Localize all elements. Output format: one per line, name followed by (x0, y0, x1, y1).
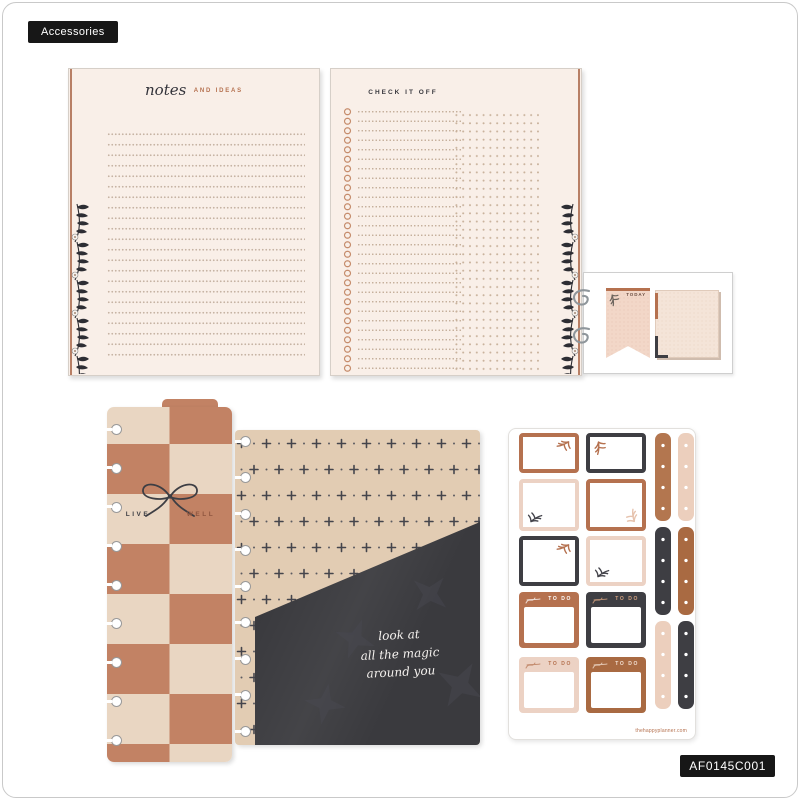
sticker-box (586, 433, 646, 473)
today-label: TODAY (626, 292, 646, 297)
sprig-icon (523, 507, 544, 528)
punch-hole (240, 726, 251, 737)
sticky-note-card: TODAY (583, 272, 733, 374)
todo-label: TO DO (548, 661, 572, 667)
checkerboard-bookmark: LIVE WELL (107, 407, 232, 762)
checklist-title: CHECK IT OFF (345, 89, 461, 96)
script-scribble-icon (592, 660, 610, 670)
sticker-box (586, 536, 646, 586)
charcoal-accent-stripe (655, 355, 668, 358)
strip-sticker (678, 433, 694, 521)
sprig-icon (590, 562, 611, 583)
product-canvas: Accessories notes AND IDEAS CHECK IT OFF (0, 0, 800, 800)
punch-hole (240, 472, 251, 483)
notes-title: notes AND IDEAS (69, 81, 319, 100)
todo-sticker-box: TO DO (519, 657, 579, 713)
punch-hole (240, 581, 251, 592)
strip-sticker (655, 621, 671, 709)
todo-sticker-box: TO DO (586, 657, 646, 713)
strip-sticker (655, 527, 671, 615)
strip-sticker (678, 527, 694, 615)
punch-hole (111, 424, 122, 435)
square-sticky-note (655, 290, 719, 358)
punch-hole (111, 580, 122, 591)
punch-hole (240, 690, 251, 701)
todo-label: TO DO (548, 596, 572, 602)
script-scribble-icon (592, 595, 610, 605)
todo-writing-area (591, 607, 641, 643)
sticker-box (519, 479, 579, 531)
folder-quote: look at all the magic around you (324, 622, 477, 686)
sticker-box (519, 433, 579, 473)
banner-sticky-note: TODAY (606, 288, 650, 358)
rust-accent-stripe (655, 293, 658, 319)
sticker-sheet: TO DO TO DO TO DO TO DO (508, 428, 696, 740)
foliage-border-icon (70, 70, 100, 374)
strip-sticker (678, 621, 694, 709)
todo-label: TO DO (615, 661, 639, 667)
ruled-dotted-lines (107, 129, 305, 361)
punch-hole (240, 654, 251, 665)
punch-holes (240, 436, 250, 737)
website-label: thehappyplanner.com (635, 728, 687, 734)
pocket-folder: look at all the magic around you (235, 430, 480, 745)
sprig-icon (591, 437, 611, 457)
sprig-icon (555, 538, 576, 559)
punch-hole (240, 617, 251, 628)
sprig-icon (555, 435, 576, 456)
binder-ring-icon (571, 287, 593, 307)
binder-ring-icon (571, 325, 593, 345)
script-scribble-icon (525, 595, 543, 605)
todo-writing-area (524, 672, 574, 708)
sticker-box (586, 479, 646, 531)
todo-sticker-box: TO DO (519, 592, 579, 648)
punch-hole (240, 545, 251, 556)
notes-notepad: notes AND IDEAS (68, 68, 320, 376)
checklist-dotted-lines (357, 107, 461, 373)
sku-badge: AF0145C001 (680, 755, 775, 777)
punch-hole (240, 436, 251, 447)
punch-hole (111, 735, 122, 746)
todo-writing-area (524, 607, 574, 643)
checklist-notepad: CHECK IT OFF (330, 68, 582, 376)
sprig-icon (621, 507, 642, 528)
punch-hole (111, 541, 122, 552)
notes-title-script: notes (145, 81, 186, 99)
punch-hole (111, 657, 122, 668)
sprig-icon (605, 289, 623, 307)
punch-hole (111, 463, 122, 474)
todo-sticker-box: TO DO (586, 592, 646, 648)
punch-hole (111, 618, 122, 629)
script-scribble-icon (525, 660, 543, 670)
sticker-box (519, 536, 579, 586)
well-label: WELL (176, 511, 226, 518)
dot-grid (453, 111, 539, 371)
notes-title-caps: AND IDEAS (194, 88, 243, 94)
checklist-circles (343, 107, 352, 373)
strip-sticker (655, 433, 671, 521)
punch-hole (240, 509, 251, 520)
todo-label: TO DO (615, 596, 639, 602)
live-label: LIVE (113, 511, 163, 518)
punch-holes (111, 424, 121, 746)
punch-hole (111, 696, 122, 707)
accessories-badge: Accessories (28, 21, 118, 43)
todo-writing-area (591, 672, 641, 708)
